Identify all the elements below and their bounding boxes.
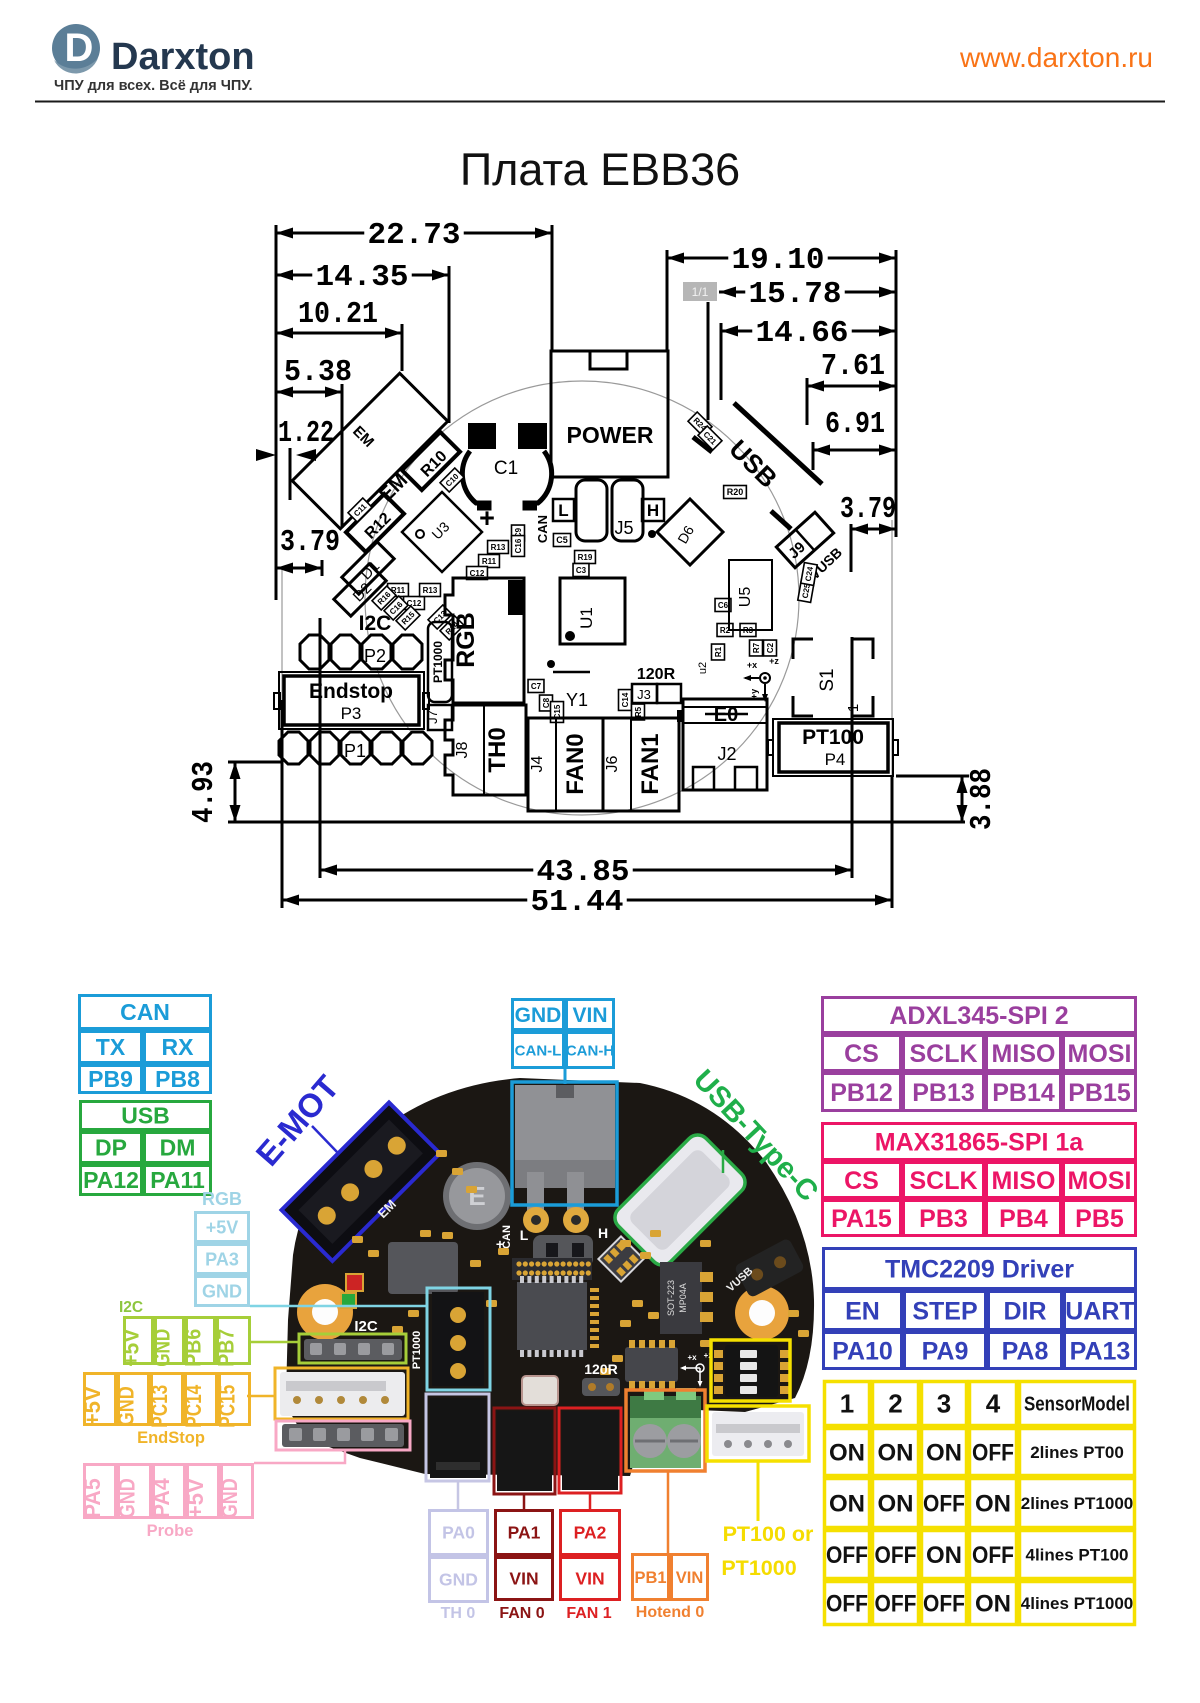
svg-text:MP04A: MP04A	[678, 1283, 688, 1313]
svg-text:+: +	[479, 503, 495, 533]
svg-text:EM: EM	[349, 423, 377, 451]
svg-text:PC13: PC13	[147, 1385, 172, 1428]
svg-text:ON: ON	[926, 1542, 962, 1569]
svg-text:P4: P4	[825, 750, 846, 769]
svg-text:GND: GND	[439, 1570, 478, 1590]
svg-text:2: 2	[888, 1389, 902, 1419]
svg-text:C6: C6	[718, 601, 729, 610]
svg-text:TH 0: TH 0	[441, 1605, 476, 1622]
svg-text:+x: +x	[747, 660, 757, 670]
svg-text:R13: R13	[491, 543, 506, 552]
svg-text:DIR: DIR	[1003, 1297, 1046, 1325]
svg-text:RGB: RGB	[452, 612, 480, 668]
svg-text:J3: J3	[637, 687, 651, 702]
svg-text:51.44: 51.44	[530, 885, 623, 920]
svg-text:PB1: PB1	[634, 1569, 666, 1587]
svg-text:Endstop: Endstop	[309, 680, 393, 703]
svg-text:+5V: +5V	[80, 1386, 105, 1426]
svg-text:C7: C7	[531, 682, 542, 691]
svg-text:C5: C5	[556, 535, 568, 545]
svg-text:3.79: 3.79	[840, 492, 896, 527]
svg-text:R19: R19	[578, 553, 593, 562]
svg-text:CAN-L: CAN-L	[515, 1042, 562, 1059]
svg-text:R20: R20	[727, 487, 744, 497]
svg-text:PB3: PB3	[919, 1205, 968, 1233]
svg-text:+5V: +5V	[183, 1478, 208, 1518]
svg-text:3.88: 3.88	[965, 768, 1000, 830]
svg-text:UART: UART	[1065, 1297, 1134, 1325]
svg-text:EN: EN	[845, 1297, 880, 1325]
svg-text:STEP: STEP	[912, 1297, 977, 1325]
svg-text:PB9: PB9	[88, 1066, 133, 1092]
svg-text:2lines PT1000: 2lines PT1000	[1021, 1494, 1133, 1513]
svg-text:VIN: VIN	[676, 1569, 704, 1587]
svg-text:GND: GND	[114, 1386, 139, 1426]
svg-text:L: L	[520, 1227, 529, 1243]
svg-text:120R: 120R	[637, 666, 676, 683]
svg-text:PA13: PA13	[1070, 1337, 1131, 1365]
svg-text:GND: GND	[150, 1329, 175, 1367]
svg-text:SOT-223: SOT-223	[666, 1280, 676, 1316]
svg-text:E-MOT: E-MOT	[248, 1068, 346, 1173]
svg-text:14.35: 14.35	[315, 260, 408, 295]
svg-text:DP: DP	[95, 1135, 127, 1161]
svg-text:PT1000: PT1000	[721, 1556, 796, 1580]
svg-text:1: 1	[840, 1389, 854, 1419]
svg-text:PB14: PB14	[992, 1079, 1055, 1107]
svg-text:PT100: PT100	[802, 726, 864, 749]
svg-text:FAN 1: FAN 1	[566, 1605, 611, 1622]
svg-text:Плата EBB36: Плата EBB36	[460, 144, 740, 195]
svg-text:OFF: OFF	[826, 1590, 868, 1617]
svg-text:C14: C14	[621, 692, 630, 707]
svg-text:C2: C2	[766, 642, 775, 653]
svg-text:R12: R12	[362, 510, 395, 543]
svg-text:GND: GND	[202, 1281, 242, 1301]
svg-text:PB5: PB5	[1075, 1205, 1124, 1233]
svg-text:C16: C16	[514, 538, 523, 553]
svg-text:5.38: 5.38	[284, 355, 352, 390]
svg-text:PA12: PA12	[83, 1167, 139, 1193]
svg-text:I2C: I2C	[119, 1299, 143, 1316]
svg-text:TH0: TH0	[484, 727, 511, 772]
svg-text:I2C: I2C	[354, 1318, 378, 1335]
svg-text:J4: J4	[529, 755, 546, 772]
svg-text:22.73: 22.73	[367, 218, 460, 253]
svg-text:ON: ON	[878, 1490, 914, 1517]
svg-text:Y1: Y1	[566, 690, 588, 710]
svg-text:H: H	[647, 501, 659, 520]
svg-text:PB4: PB4	[999, 1205, 1048, 1233]
svg-text:ON: ON	[878, 1439, 914, 1466]
svg-text:ON: ON	[975, 1490, 1011, 1517]
svg-text:OFF: OFF	[875, 1590, 917, 1617]
svg-text:I2C: I2C	[359, 612, 392, 635]
svg-text:OFF: OFF	[972, 1542, 1014, 1569]
svg-text:U1: U1	[577, 607, 596, 629]
svg-text:C12: C12	[470, 569, 485, 578]
svg-text:MAX31865-SPI 1a: MAX31865-SPI 1a	[875, 1128, 1085, 1156]
svg-text:14.66: 14.66	[755, 316, 848, 351]
svg-text:OFF: OFF	[923, 1490, 965, 1517]
svg-text:OFF: OFF	[826, 1542, 868, 1569]
svg-text:PC14: PC14	[181, 1384, 206, 1428]
svg-text:PB13: PB13	[912, 1079, 975, 1107]
svg-text:7.61: 7.61	[821, 349, 885, 384]
svg-text:CAN-H: CAN-H	[566, 1042, 614, 1059]
svg-text:C8: C8	[542, 697, 551, 708]
svg-text:PB15: PB15	[1068, 1079, 1131, 1107]
svg-text:CAN: CAN	[535, 515, 550, 543]
svg-text:+5V: +5V	[206, 1217, 239, 1237]
svg-text:P2: P2	[364, 646, 386, 666]
svg-text:TX: TX	[96, 1034, 126, 1060]
svg-text:R7: R7	[752, 642, 761, 653]
svg-text:DM: DM	[160, 1135, 196, 1161]
svg-text:2lines PT00: 2lines PT00	[1030, 1443, 1124, 1462]
svg-text:OFF: OFF	[875, 1542, 917, 1569]
svg-text:MISO: MISO	[992, 1040, 1056, 1068]
svg-text:D: D	[65, 26, 94, 70]
svg-text:FAN0: FAN0	[562, 733, 589, 794]
svg-text:PA10: PA10	[832, 1337, 893, 1365]
svg-text:Probe: Probe	[147, 1522, 194, 1540]
svg-text:PA4: PA4	[149, 1478, 174, 1519]
svg-text:C12: C12	[407, 599, 422, 608]
svg-text:OFF: OFF	[972, 1439, 1014, 1466]
svg-text:TMC2209 Driver: TMC2209 Driver	[885, 1255, 1074, 1283]
svg-text:D6: D6	[674, 523, 697, 547]
svg-text:PA3: PA3	[205, 1249, 239, 1269]
svg-text:SCLK: SCLK	[909, 1167, 977, 1195]
svg-text:PT1000: PT1000	[411, 1331, 423, 1370]
svg-text:ЧПУ для всех. Всё для ЧПУ.: ЧПУ для всех. Всё для ЧПУ.	[54, 78, 253, 94]
svg-text:ON: ON	[829, 1490, 865, 1517]
svg-text:+x: +x	[687, 1353, 697, 1362]
svg-text:PA9: PA9	[922, 1337, 969, 1365]
svg-text:VIN: VIN	[572, 1004, 607, 1027]
svg-text:U5: U5	[737, 587, 754, 608]
svg-text:GND: GND	[217, 1478, 242, 1518]
svg-text:J6: J6	[604, 755, 621, 772]
svg-text:15.78: 15.78	[748, 277, 841, 312]
svg-text:Hotend 0: Hotend 0	[636, 1604, 705, 1621]
svg-text:PA11: PA11	[150, 1167, 205, 1193]
svg-text:R10: R10	[418, 448, 451, 481]
svg-text:4lines PT1000: 4lines PT1000	[1021, 1594, 1133, 1613]
svg-text:+5V: +5V	[119, 1328, 144, 1366]
svg-text:3: 3	[937, 1389, 951, 1419]
svg-text:E: E	[468, 1181, 485, 1211]
svg-text:PB6: PB6	[181, 1329, 206, 1367]
svg-text:u2: u2	[697, 662, 709, 674]
svg-text:EndStop: EndStop	[137, 1429, 205, 1447]
svg-text:VIN: VIN	[575, 1569, 604, 1589]
svg-text:PC15: PC15	[215, 1385, 240, 1428]
svg-text:MOSI: MOSI	[1068, 1167, 1132, 1195]
svg-text:J2: J2	[717, 744, 736, 764]
svg-text:CS: CS	[844, 1167, 879, 1195]
svg-text:PA8: PA8	[1002, 1337, 1049, 1365]
svg-text:OFF: OFF	[923, 1590, 965, 1617]
svg-text:R1: R1	[714, 646, 723, 657]
svg-text:3.79: 3.79	[280, 525, 340, 560]
svg-text:PA15: PA15	[831, 1205, 892, 1233]
svg-text:120R: 120R	[584, 1361, 617, 1377]
svg-text:P1: P1	[344, 741, 366, 761]
svg-text:ON: ON	[975, 1590, 1011, 1617]
svg-text:C1: C1	[494, 458, 518, 479]
svg-text:PA0: PA0	[442, 1523, 475, 1543]
svg-text:Darxton: Darxton	[111, 36, 255, 78]
svg-text:POWER: POWER	[567, 422, 654, 448]
svg-text:GND: GND	[115, 1478, 140, 1518]
svg-text:R5: R5	[634, 706, 643, 717]
svg-text:VIN: VIN	[509, 1569, 538, 1589]
svg-text:PA2: PA2	[574, 1523, 607, 1543]
svg-text:J7: J7	[425, 710, 440, 724]
svg-text:L: L	[558, 501, 568, 520]
svg-text:1/1: 1/1	[692, 285, 709, 299]
svg-text:4.93: 4.93	[187, 761, 222, 823]
svg-text:PB12: PB12	[830, 1079, 893, 1107]
svg-text:RX: RX	[162, 1034, 195, 1060]
svg-text:PT1000: PT1000	[431, 641, 445, 683]
svg-text:PA1: PA1	[508, 1523, 541, 1543]
svg-text:MISO: MISO	[992, 1167, 1056, 1195]
svg-text:FAN1: FAN1	[637, 733, 664, 794]
svg-text:R13: R13	[423, 586, 438, 595]
svg-text:PA5: PA5	[80, 1478, 105, 1518]
svg-text:C3: C3	[576, 566, 587, 575]
svg-text:J5: J5	[614, 518, 633, 538]
svg-text:CS: CS	[844, 1040, 879, 1068]
svg-text:ON: ON	[829, 1439, 865, 1466]
svg-text:S1: S1	[817, 668, 838, 691]
svg-text:4: 4	[986, 1389, 1001, 1419]
svg-text:10.21: 10.21	[298, 297, 378, 332]
svg-text:P3: P3	[341, 704, 362, 723]
svg-text:PB7: PB7	[214, 1329, 239, 1367]
svg-text:R11: R11	[482, 557, 497, 566]
svg-text:PB8: PB8	[155, 1066, 200, 1092]
svg-text:+z: +z	[769, 656, 779, 666]
svg-text:RGB: RGB	[202, 1189, 242, 1209]
svg-text:+y: +y	[749, 689, 759, 699]
svg-text:6.91: 6.91	[825, 407, 885, 442]
svg-text:ON: ON	[926, 1439, 962, 1466]
svg-text:USB: USB	[121, 1103, 170, 1129]
svg-text:U3: U3	[428, 518, 452, 542]
svg-text:PT100 or: PT100 or	[723, 1522, 814, 1546]
svg-text:SensorModel: SensorModel	[1024, 1394, 1130, 1416]
svg-text:H: H	[598, 1225, 608, 1241]
svg-text:SCLK: SCLK	[909, 1040, 977, 1068]
svg-text:FAN 0: FAN 0	[499, 1605, 544, 1622]
svg-text:MOSI: MOSI	[1068, 1040, 1132, 1068]
svg-text:ADXL345-SPI 2: ADXL345-SPI 2	[889, 1002, 1068, 1030]
svg-text:GND: GND	[515, 1004, 562, 1027]
svg-text:CAN: CAN	[120, 999, 170, 1025]
svg-text:www.darxton.ru: www.darxton.ru	[959, 42, 1153, 73]
svg-text:J8: J8	[454, 741, 471, 758]
svg-text:4lines PT100: 4lines PT100	[1025, 1545, 1128, 1564]
